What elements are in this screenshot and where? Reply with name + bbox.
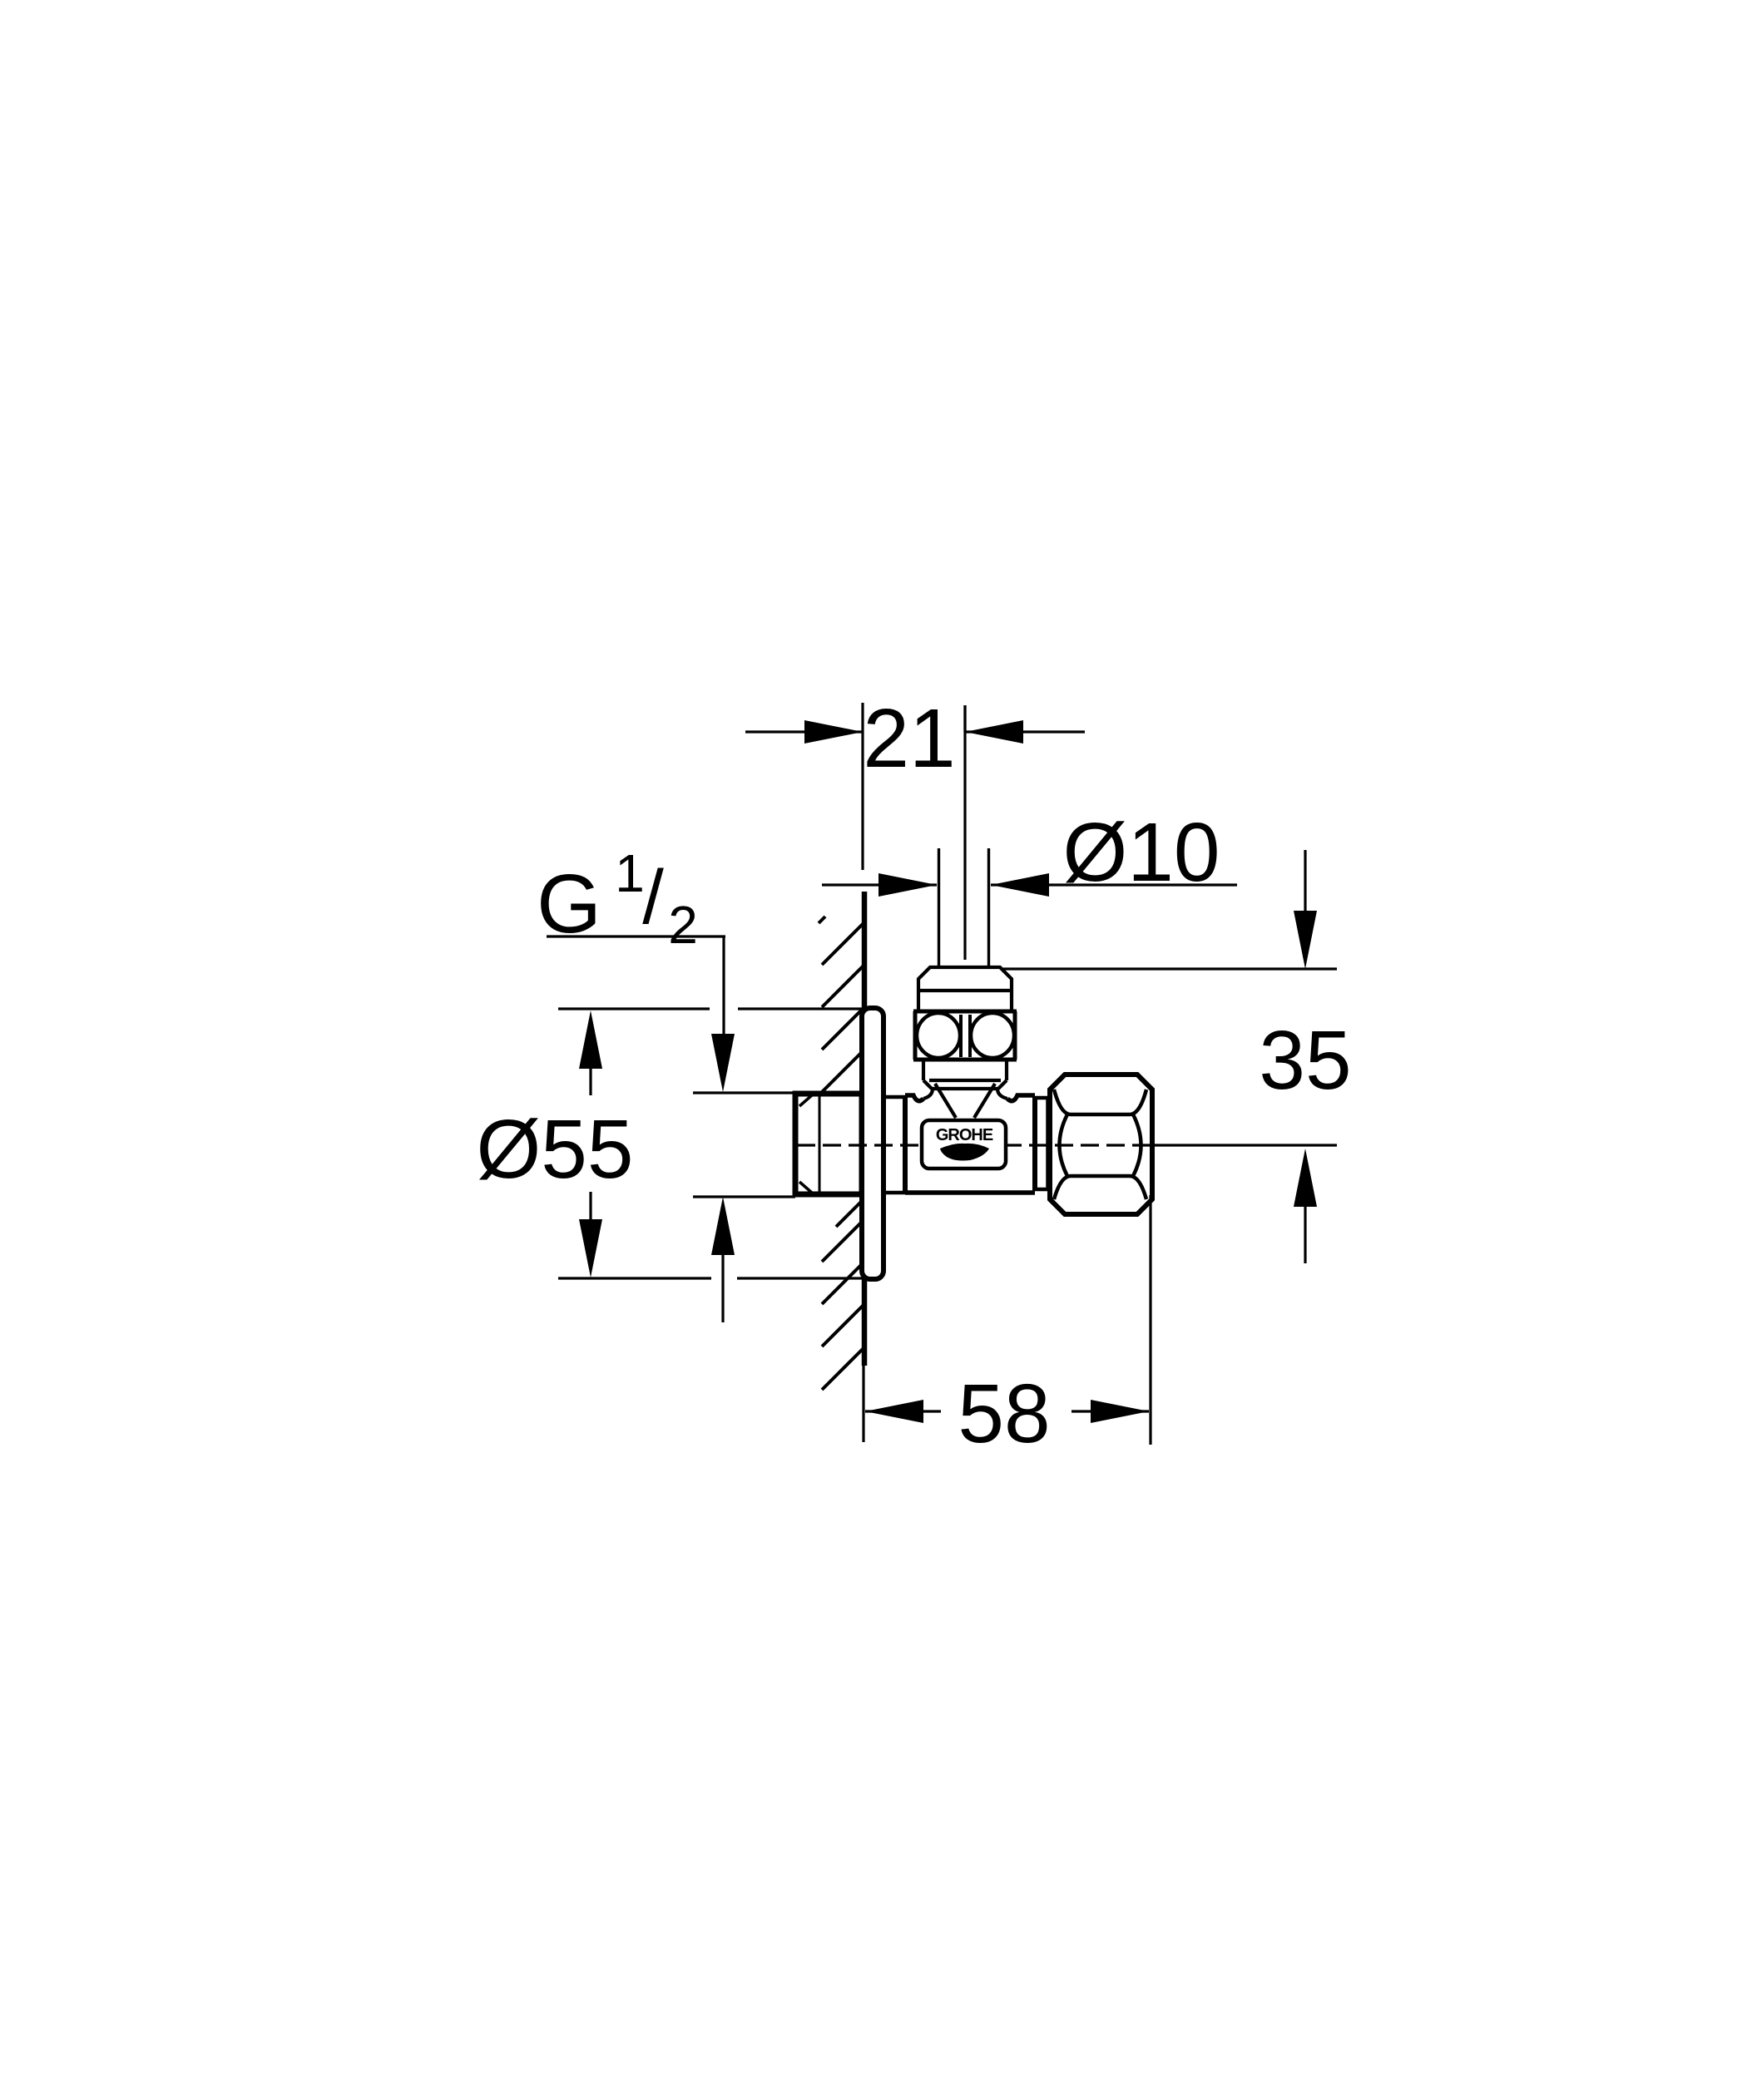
svg-text:58: 58 — [958, 1367, 1050, 1460]
svg-text:1: 1 — [615, 843, 645, 903]
svg-text:35: 35 — [1259, 1014, 1351, 1107]
svg-text:21: 21 — [863, 692, 955, 785]
svg-text:Ø55: Ø55 — [476, 1103, 633, 1196]
svg-text:Ø10: Ø10 — [1062, 806, 1220, 899]
svg-text:/: / — [642, 855, 664, 940]
svg-text:2: 2 — [668, 895, 698, 955]
svg-text:GROHE: GROHE — [936, 1126, 993, 1144]
